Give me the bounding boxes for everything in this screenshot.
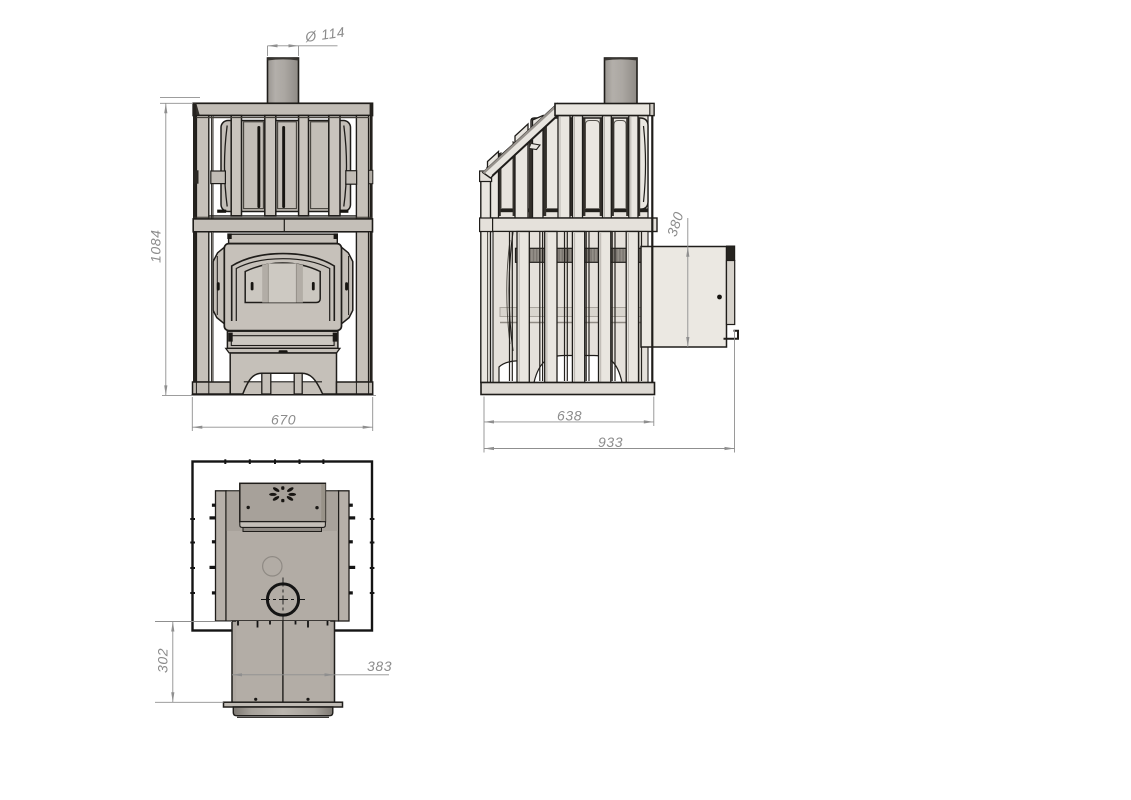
svg-text:670: 670	[271, 412, 296, 428]
svg-text:1084: 1084	[148, 229, 164, 263]
svg-text:933: 933	[598, 434, 623, 450]
svg-text:302: 302	[154, 648, 170, 673]
svg-text:383: 383	[367, 658, 392, 674]
svg-text:638: 638	[557, 408, 582, 424]
